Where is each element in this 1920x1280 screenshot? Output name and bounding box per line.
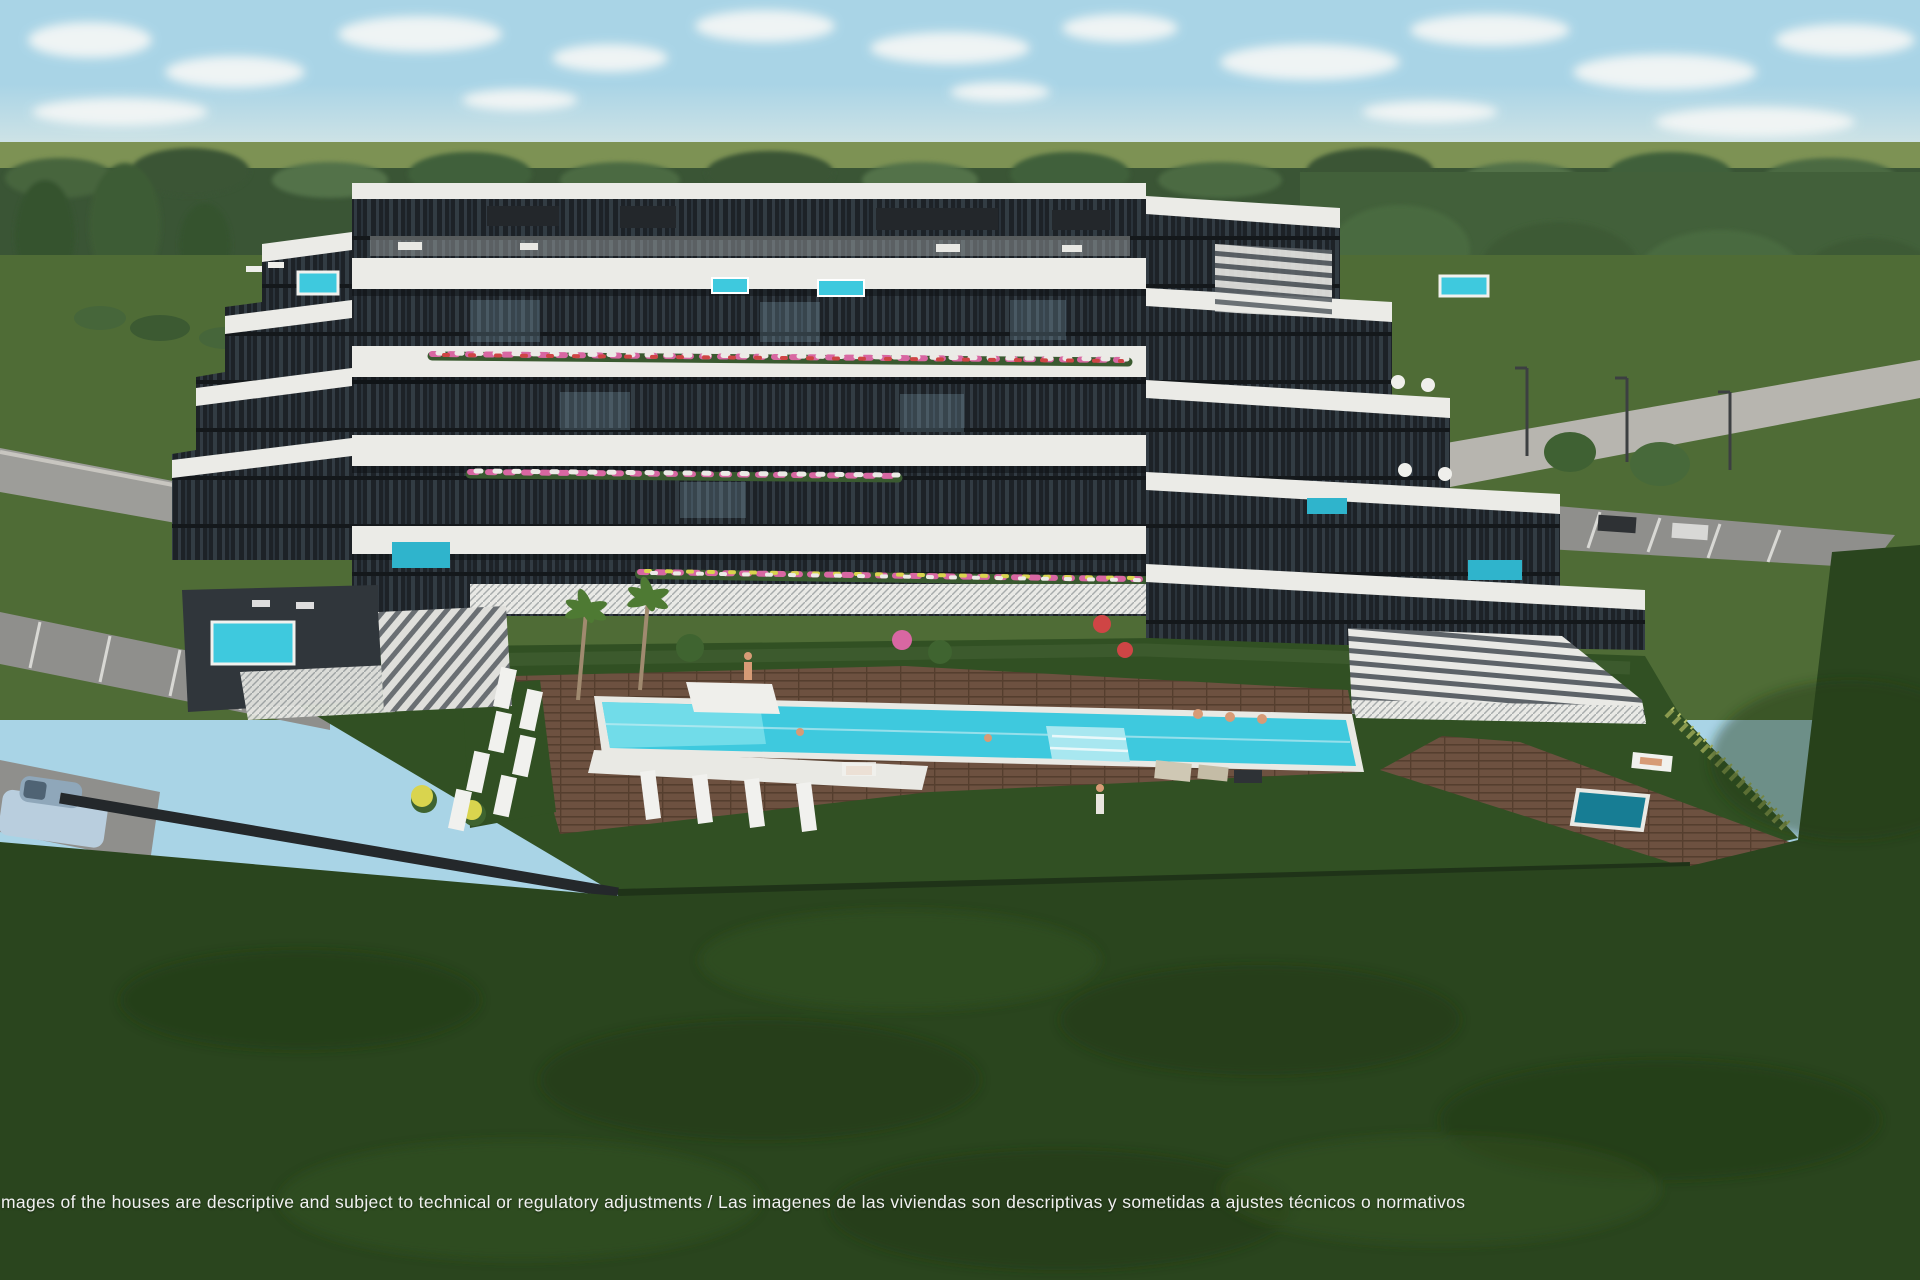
towel <box>842 762 876 776</box>
lounger <box>398 242 422 250</box>
left-pergola <box>378 606 512 712</box>
bush <box>928 640 952 664</box>
rooftop-pool <box>1440 276 1488 296</box>
spa-square <box>1572 790 1648 830</box>
tree <box>1158 162 1282 198</box>
tree <box>1630 442 1690 486</box>
car-windshield <box>23 779 47 800</box>
rooftop-pergola <box>1215 244 1332 318</box>
pool-sitter <box>1225 712 1235 722</box>
red-bush <box>1117 642 1133 658</box>
lounger <box>936 244 960 252</box>
grass-patch <box>1060 965 1460 1075</box>
cloud <box>1775 24 1915 56</box>
grass-patch <box>540 1020 980 1140</box>
architectural-render-scene: mages of the houses are descriptive and … <box>0 0 1920 1280</box>
roof-box <box>487 206 559 226</box>
person <box>744 662 752 680</box>
parked-car-white <box>1671 523 1708 540</box>
cloud <box>165 56 305 88</box>
window <box>470 300 540 342</box>
bush <box>676 634 704 662</box>
pool-sitter <box>1257 714 1267 724</box>
egg-chair <box>1398 463 1412 477</box>
egg-chair <box>1391 375 1405 389</box>
red-bush <box>1093 615 1111 633</box>
pool-sitter <box>1193 709 1203 719</box>
pink-bush <box>892 630 912 650</box>
lounger <box>296 602 314 609</box>
grass-patch <box>120 950 480 1050</box>
tree <box>1544 432 1596 472</box>
terrace-sofa <box>392 542 450 568</box>
penthouse-terrace <box>370 236 1130 256</box>
lounger <box>1062 245 1082 252</box>
lounger <box>246 266 262 272</box>
cloud <box>1573 54 1757 90</box>
swimmer <box>796 728 804 736</box>
egg-chair <box>1421 378 1435 392</box>
balcony-band <box>352 435 1146 466</box>
window <box>1010 300 1066 340</box>
window <box>680 482 746 518</box>
cloud <box>695 10 835 42</box>
cloud <box>28 22 152 58</box>
balcony-band <box>352 526 1146 554</box>
lounger <box>252 600 270 607</box>
pool-platform <box>686 682 780 714</box>
roof-band <box>352 183 1146 199</box>
sofa <box>1154 760 1192 782</box>
grass-patch <box>700 910 1100 1010</box>
spa-pool <box>818 280 864 296</box>
terrace-jacuzzi <box>1468 560 1522 580</box>
person-body <box>1096 794 1104 814</box>
cloud <box>1220 44 1400 80</box>
cloud <box>338 16 502 52</box>
rooftop-pool <box>298 272 338 294</box>
cloud <box>950 82 1050 102</box>
shadow <box>352 377 1146 384</box>
spa-pool <box>712 278 748 293</box>
render-canvas <box>0 0 1920 1280</box>
swimmer <box>984 734 992 742</box>
private-pool <box>212 622 294 664</box>
roof-box <box>620 206 676 228</box>
window <box>900 394 964 432</box>
bush <box>74 306 126 330</box>
table <box>1234 770 1262 783</box>
disclaimer-text: mages of the houses are descriptive and … <box>1 1192 1465 1213</box>
grass-patch <box>1220 1135 1660 1245</box>
cloud <box>552 44 668 72</box>
cloud <box>32 98 208 126</box>
roof-box <box>1052 210 1110 230</box>
ground-railing <box>470 584 1146 614</box>
cloud <box>1062 14 1178 42</box>
cloud <box>870 32 1030 64</box>
lounger <box>520 243 538 250</box>
cloud <box>1655 107 1855 137</box>
yellow-flowers <box>411 785 433 807</box>
bush <box>130 315 190 341</box>
shadow <box>352 554 1146 560</box>
lounger <box>268 262 284 268</box>
cloud <box>1362 101 1498 123</box>
window <box>560 392 630 430</box>
annex-roof-deck <box>240 665 395 720</box>
person-head <box>1096 784 1104 792</box>
egg-chair <box>1438 467 1452 481</box>
pool-steps <box>1046 726 1130 762</box>
roof-box <box>876 208 998 230</box>
window <box>760 302 820 342</box>
terrace-jacuzzi <box>1307 498 1347 514</box>
cloud <box>462 89 578 111</box>
parked-car-dark <box>1597 515 1636 534</box>
cloud <box>1410 14 1570 46</box>
person <box>744 652 752 660</box>
